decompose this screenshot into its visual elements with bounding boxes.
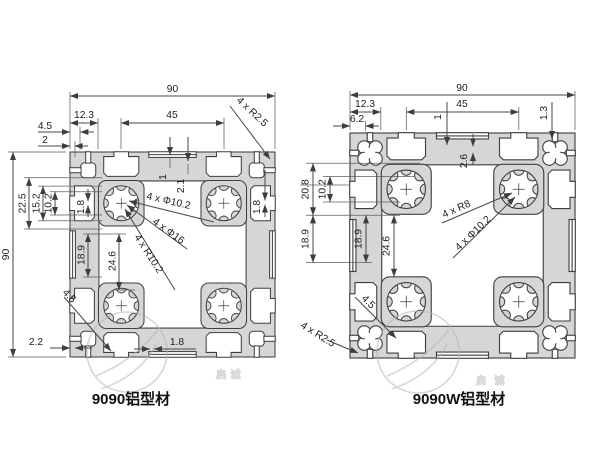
dim-9090-102: 10.2: [44, 193, 55, 213]
dim-9090w-1: 1: [433, 114, 444, 120]
watermark-text: 启诚: [476, 374, 513, 387]
dim-9090-22: 2.2: [29, 337, 44, 348]
dim-9090w-102: 10.2: [318, 179, 329, 199]
dim-9090-r25: 4 x R2.5: [234, 95, 270, 129]
dim-9090w-246: 24.6: [382, 236, 393, 256]
caption-9090: 9090铝型材: [92, 390, 170, 408]
dim-9090w-width-90: 90: [456, 83, 468, 94]
dim-9090-18-right: 1.8: [252, 200, 263, 215]
dim-9090-189: 18.9: [77, 245, 88, 265]
dim-9090-45-top: 45: [166, 110, 178, 121]
drawing-canvas: 启诚 启诚: [0, 0, 600, 450]
technical-drawing-page: 启诚 启诚: [0, 0, 600, 450]
dim-9090w-26: 2.6: [459, 154, 470, 169]
dim-9090-2: 2: [42, 135, 48, 146]
dim-9090w-208: 20.8: [301, 179, 312, 199]
dim-9090-1: 1: [158, 174, 169, 180]
dim-9090-45-corner: 4.5: [38, 121, 53, 132]
dim-9090w-62: 6.2: [350, 114, 365, 125]
dim-9090-width-90: 90: [167, 84, 179, 95]
dim-9090w-13: 1.3: [539, 106, 550, 121]
dim-9090-152: 15.2: [32, 193, 43, 213]
dim-9090-21: 2.1: [176, 179, 187, 194]
dim-9090-18-bottom: 1.8: [170, 337, 185, 348]
dim-9090-height-90: 90: [1, 249, 12, 261]
dim-9090-18-left: 1.8: [76, 200, 87, 215]
dim-9090w-189-inner: 18.9: [354, 229, 365, 249]
watermark-text: 启诚: [216, 368, 245, 381]
dim-9090-246: 24.6: [108, 251, 119, 271]
dim-9090w-189-outer: 18.9: [301, 229, 312, 249]
dim-9090w-r25: 4 x R2.5: [298, 320, 337, 350]
caption-9090w: 9090W铝型材: [413, 390, 506, 408]
dim-9090w-123: 12.3: [355, 99, 375, 110]
dim-9090-225: 22.5: [18, 193, 29, 213]
dim-9090-123: 12.3: [74, 110, 94, 121]
profile-9090-drawing: [70, 152, 276, 358]
dim-9090w-45-top: 45: [456, 99, 468, 110]
